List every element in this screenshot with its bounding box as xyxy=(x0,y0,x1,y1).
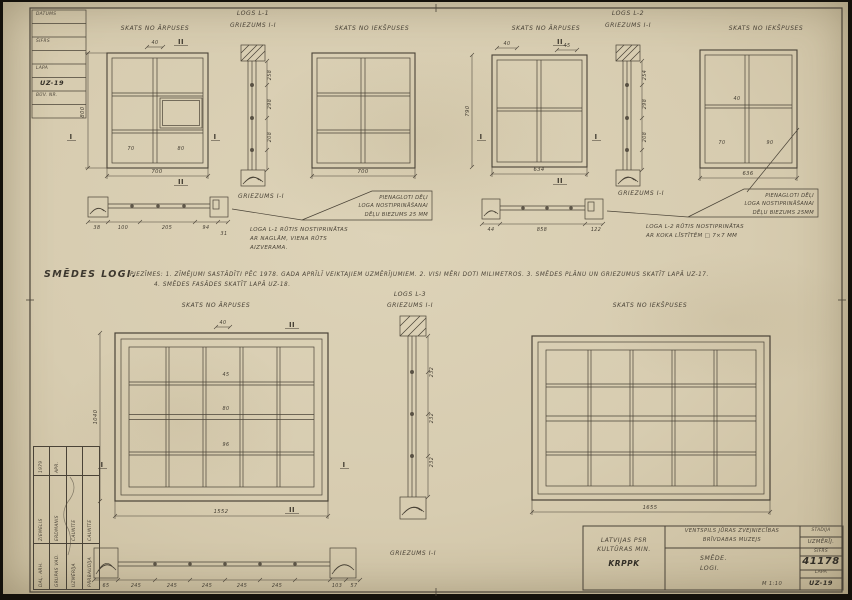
l2-exterior-label: SKATS NO ĀRPUSES xyxy=(512,26,580,32)
section-mark: II xyxy=(289,506,295,514)
dim-label: 254 xyxy=(642,70,648,80)
dim-label: 208 xyxy=(267,132,273,142)
dim-label: 103 xyxy=(332,583,342,589)
l2-note-line: LOGA L-2 RŪTIS NOSTIPRINĀTAS xyxy=(646,223,744,232)
signature-date xyxy=(67,447,82,475)
l1-note-line: AIZVERAMA. xyxy=(250,244,348,253)
l1-sill-section-label: GRIEZUMS I-I xyxy=(238,194,284,200)
dim-label: 634 xyxy=(533,167,544,173)
corner-row-sifrs: ŠIFRS xyxy=(36,40,50,44)
dim-label: 245 xyxy=(167,583,177,589)
l1-note-box: PIENAGLOTI DĒĻI LOGA NOSTIPRINĀŠANAI DĒĻ… xyxy=(306,194,428,219)
dim-label: 245 xyxy=(202,583,212,589)
signature-date: 1979 xyxy=(34,447,49,475)
l3-sill-section-label: GRIEZUMS I-I xyxy=(390,551,436,557)
l3-exterior-label: SKATS NO ĀRPUSES xyxy=(182,303,250,309)
dim-label: 94 xyxy=(203,225,210,231)
dim-label: 700 xyxy=(151,169,162,175)
dim-label: 858 xyxy=(537,227,547,233)
dim-label: 90 xyxy=(767,140,774,146)
l1-note: LOGA L-1 RŪTIS NOSTIPRINĀTAS AR NAGLĀM, … xyxy=(250,226,348,253)
notes-line-2: 4. SMĒDES FASĀDES SKATĪT LAPĀ UZ-18. xyxy=(154,283,291,289)
dim-label: 800 xyxy=(80,106,86,117)
l2-sill-section-label: GRIEZUMS I-I xyxy=(618,191,664,197)
section-mark: I xyxy=(342,461,345,469)
signature-role: UZMĒRĪJA xyxy=(67,543,82,589)
dim-label: 258 xyxy=(267,70,273,80)
l1-note-line: AR NAGLĀM, VIENA RŪTS xyxy=(250,235,348,244)
l2-note-box-line: PIENAGLOTI DĒĻI xyxy=(694,192,814,200)
l1-note-box-line: LOGA NOSTIPRINĀŠANAI xyxy=(306,202,428,210)
signature-date: APR. xyxy=(50,447,65,475)
section-mark: II xyxy=(557,177,563,185)
notes-line-1: PIEZĪMES: 1. ZĪMĒJUMI SASTĀDĪTI PĒC 1978… xyxy=(130,273,709,279)
dim-label: 245 xyxy=(237,583,247,589)
scanned-drawing-sheet: { "colors": {"paper":"#d8cdb2","ink":"#4… xyxy=(0,0,852,600)
l1-note-box-line: PIENAGLOTI DĒĻI xyxy=(306,194,428,202)
dim-label: 636 xyxy=(742,171,753,177)
section-mark: II xyxy=(289,321,295,329)
dim-label: 245 xyxy=(131,583,141,589)
sheet-linework: 800 700 40 70 80 II II I I 258 298 208 7… xyxy=(0,0,852,600)
dim-label: 45 xyxy=(223,372,230,378)
dim-label: 298 xyxy=(642,99,648,109)
dim-label: 40 xyxy=(734,96,741,102)
dim-label: 65 xyxy=(103,583,110,589)
org-line-2: KULTŪRAS MIN. xyxy=(597,547,651,553)
dim-label: 96 xyxy=(223,442,230,448)
signature-row: PĀRBAUDĪJA CAUNĪTE xyxy=(83,447,99,589)
sheet-name-2: LOGI. xyxy=(700,566,719,572)
l2-interior-label: SKATS NO IEKŠPUSES xyxy=(729,26,804,32)
dim-label: 80 xyxy=(223,406,230,412)
dim-label: 44 xyxy=(488,227,495,233)
corner-row-lapa: LAPA xyxy=(36,67,48,71)
l3-title: LOGS L-3 xyxy=(394,292,426,298)
section-mark: II xyxy=(178,38,184,46)
dim-label: 232 xyxy=(429,413,435,423)
dim-label: 100 xyxy=(118,225,128,231)
corner-row-datums: DATUMS xyxy=(36,13,56,17)
signature-name: ERDMANIS xyxy=(50,475,65,543)
dim-label: 45 xyxy=(564,43,571,49)
signature-row: GRUPAS VAD. ERDMANIS APR. xyxy=(50,447,66,589)
corner-row-buv-nr: BŪV. NR. xyxy=(36,94,58,98)
l1-interior-label: SKATS NO IEKŠPUSES xyxy=(335,26,410,32)
l2-title: LOGS L-2 xyxy=(612,11,644,17)
section-mark: II xyxy=(557,38,563,46)
dim-label: 70 xyxy=(719,140,726,146)
dim-label: 1552 xyxy=(214,509,229,515)
stadija-label: STADIJA xyxy=(811,529,830,533)
stadija-value: UZMĒRĪJ. xyxy=(808,540,835,545)
org-line-3: KRPPK xyxy=(608,560,639,568)
dim-label: 208 xyxy=(642,132,648,142)
signature-name: CAUNĪTE xyxy=(83,475,99,543)
dim-label: 80 xyxy=(178,146,185,152)
l2-section-label: GRIEZUMS I-I xyxy=(605,23,651,29)
signature-role: DAĻ. ARH. xyxy=(34,543,49,589)
l1-note-box-line: DĒĻU BIEZUMS 25 MM xyxy=(306,211,428,219)
signature-row: UZMĒRĪJA CAUNĪTE xyxy=(67,447,83,589)
lapa-label: LAPA xyxy=(815,571,827,575)
project-line-1: VENTSPILS JŪRAS ZVEJNIECĪBAS xyxy=(685,529,779,534)
sifrs-label: ŠIFRS xyxy=(814,550,828,554)
signature-name: CAUNĪTE xyxy=(67,475,82,543)
lapa-value: UZ-19 xyxy=(809,580,833,587)
dim-label: 205 xyxy=(162,225,172,231)
l2-note-box-line: DĒĻU BIEZUMS 25MM xyxy=(694,209,814,217)
dim-label: 232 xyxy=(429,367,435,377)
l1-note-line: LOGA L-1 RŪTIS NOSTIPRINĀTAS xyxy=(250,226,348,235)
signature-role: GRUPAS VAD. xyxy=(50,543,65,589)
dim-label: 232 xyxy=(429,457,435,467)
l2-note-line: AR KOKA LĪSTĪTĒM □ 7×7 MM xyxy=(646,232,744,241)
sheet-subject-title: SMĒDES LOGI. xyxy=(44,270,137,280)
sheet-name-1: SMĒDE. xyxy=(700,556,727,562)
l1-title: LOGS L-1 xyxy=(237,11,269,17)
l3-section-label: GRIEZUMS I-I xyxy=(387,303,433,309)
l1-section-label: GRIEZUMS I-I xyxy=(230,23,276,29)
l1-exterior-label: SKATS NO ĀRPUSES xyxy=(121,26,189,32)
dim-label: 40 xyxy=(220,320,227,326)
org-line-1: LATVIJAS PSR xyxy=(601,538,647,544)
signature-table: DAĻ. ARH. ZIEMELIS 1979 GRUPAS VAD. ERDM… xyxy=(33,446,100,590)
section-mark: I xyxy=(479,133,482,141)
dim-label: 57 xyxy=(351,583,358,589)
scale-label: M 1:10 xyxy=(762,582,782,587)
signature-row: DAĻ. ARH. ZIEMELIS 1979 xyxy=(34,447,50,589)
l2-note-box-line: LOGA NOSTIPRINĀŠANAI xyxy=(694,200,814,208)
section-mark: II xyxy=(178,178,184,186)
section-mark: I xyxy=(213,133,216,141)
dim-label: 38 xyxy=(94,225,101,231)
section-mark: I xyxy=(69,133,72,141)
dim-label: 700 xyxy=(357,169,368,175)
dim-label: 1040 xyxy=(93,409,99,424)
sifrs-value: 41178 xyxy=(802,557,840,567)
dim-label: 40 xyxy=(504,41,511,47)
dim-label: 31 xyxy=(221,231,228,237)
l2-note: LOGA L-2 RŪTIS NOSTIPRINĀTAS AR KOKA LĪS… xyxy=(646,223,744,241)
dim-label: 1655 xyxy=(643,505,658,511)
dim-label: 40 xyxy=(152,40,159,46)
dim-label: 245 xyxy=(272,583,282,589)
dim-label: 298 xyxy=(267,99,273,109)
signature-date xyxy=(83,447,99,475)
l3-interior-label: SKATS NO IEKŠPUSES xyxy=(613,303,688,309)
project-line-2: BRĪVDABAS MUZEJS xyxy=(703,538,761,543)
section-mark: I xyxy=(594,133,597,141)
dim-label: 70 xyxy=(128,146,135,152)
signature-name: ZIEMELIS xyxy=(34,475,49,543)
section-mark: I xyxy=(100,461,103,469)
dim-label: 790 xyxy=(465,105,471,116)
signature-role: PĀRBAUDĪJA xyxy=(83,543,99,589)
corner-row-uz19: UZ-19 xyxy=(40,80,64,87)
dim-label: 122 xyxy=(591,227,601,233)
l2-note-box: PIENAGLOTI DĒĻI LOGA NOSTIPRINĀŠANAI DĒĻ… xyxy=(694,192,814,217)
